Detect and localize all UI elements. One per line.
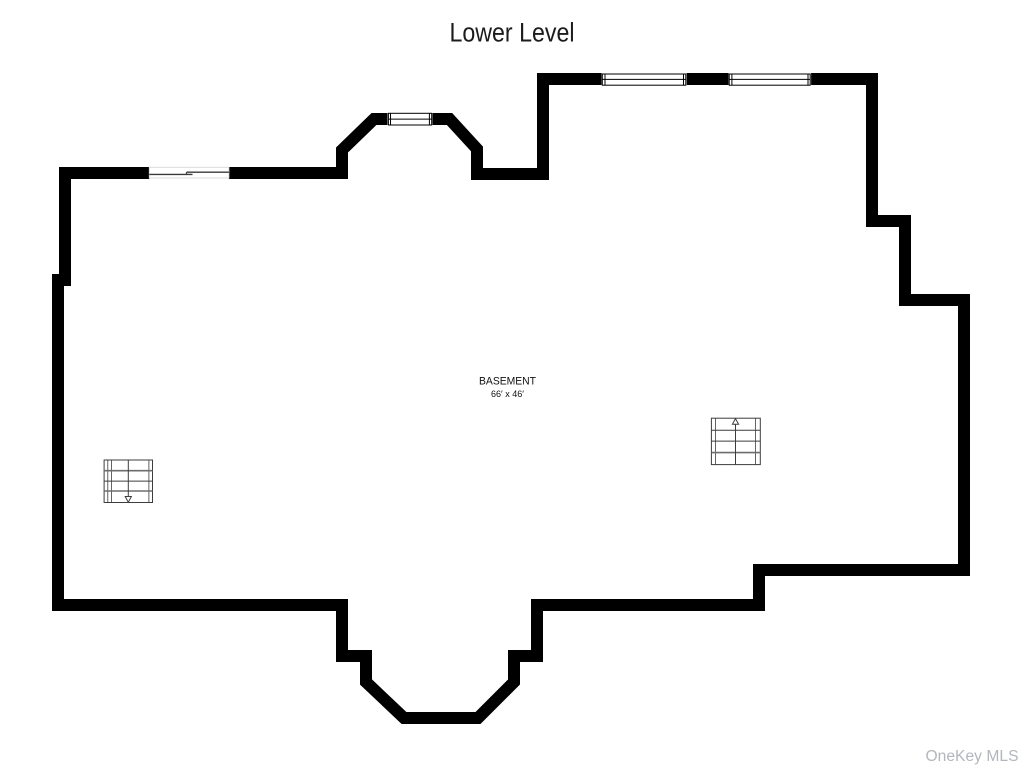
svg-text:Lower Level: Lower Level bbox=[450, 18, 575, 48]
svg-text:OneKey MLS: OneKey MLS bbox=[926, 748, 1019, 765]
svg-text:66′ x 46′: 66′ x 46′ bbox=[491, 389, 524, 399]
svg-text:BASEMENT: BASEMENT bbox=[479, 376, 536, 388]
